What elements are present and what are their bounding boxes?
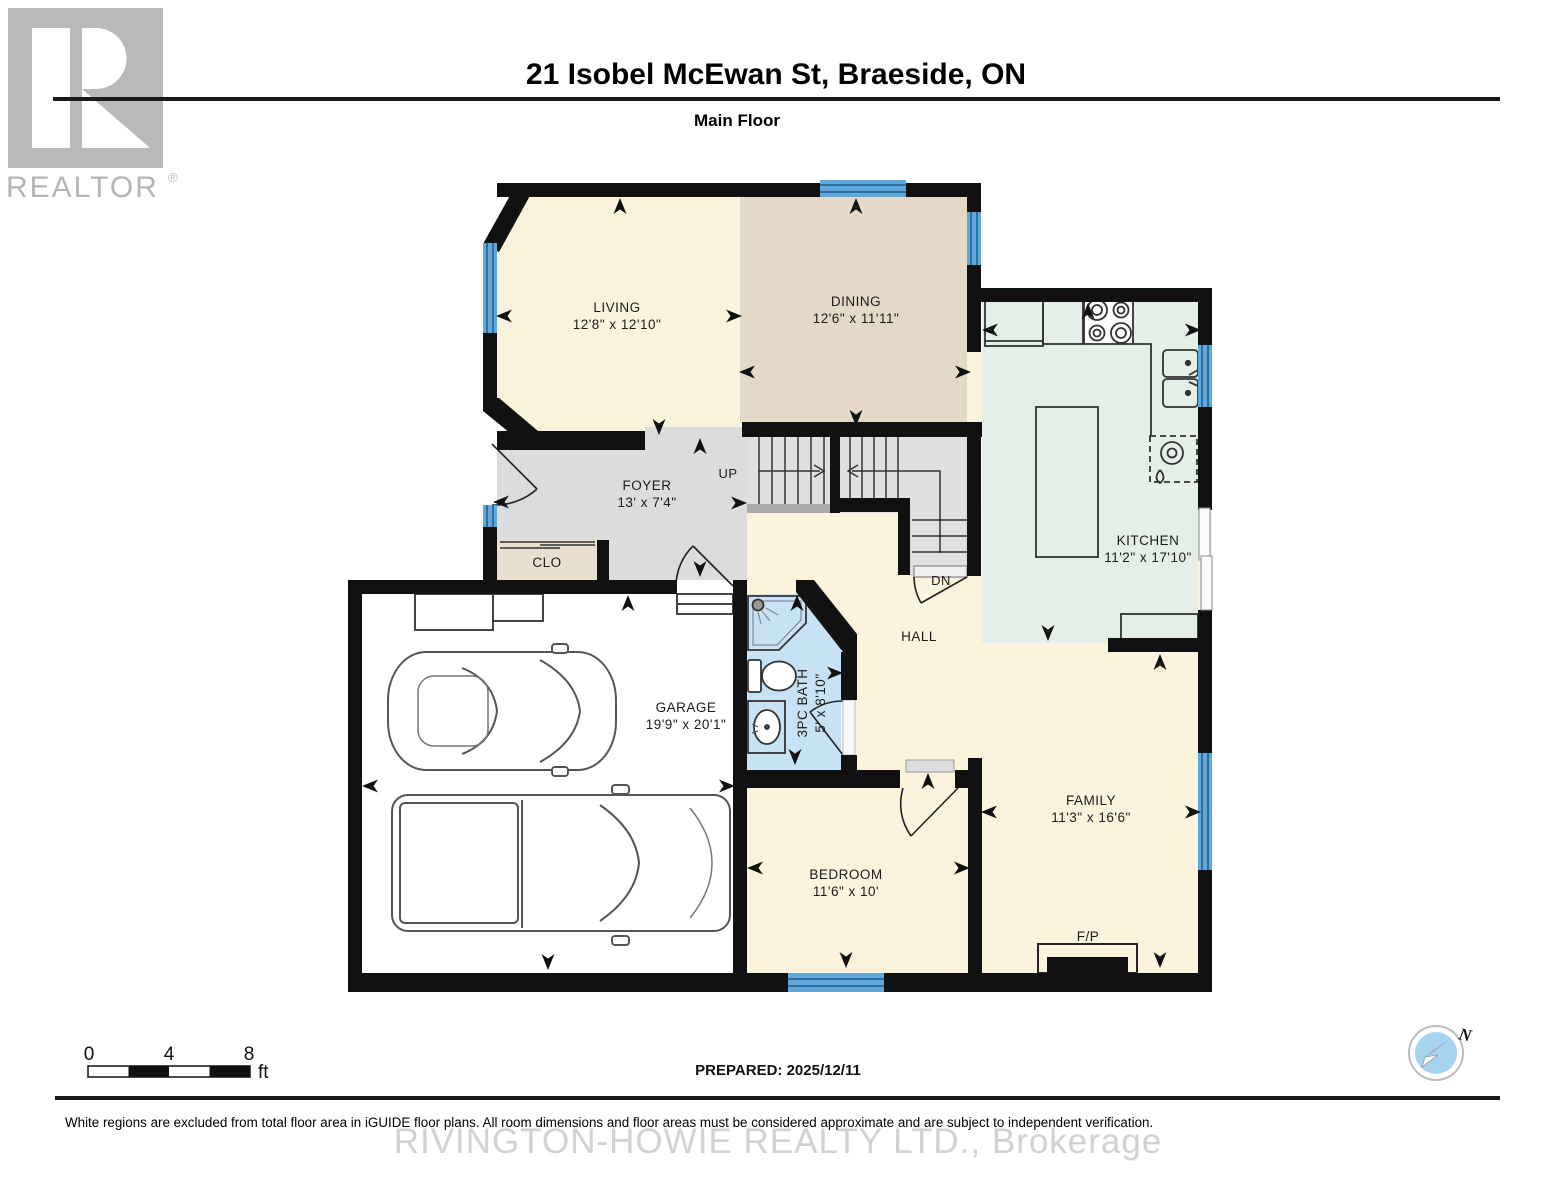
stairs-down-label: DN <box>931 573 951 588</box>
window-dining-right <box>967 212 981 265</box>
car-truck-icon <box>392 785 730 945</box>
bedroom-name: BEDROOM <box>809 867 882 882</box>
kitchen-dims: 11'2" x 17'10" <box>1104 550 1192 565</box>
bath-name: 3PC BATH <box>795 668 810 737</box>
shower-head-icon <box>753 600 764 611</box>
header-divider-line <box>53 97 1500 101</box>
stairs-lower-fill <box>905 505 967 575</box>
scale-bar-segment-2 <box>210 1066 251 1077</box>
car-sports-icon <box>388 644 616 776</box>
floor-label: Main Floor <box>694 111 780 130</box>
kitchen-counter-bottom <box>1121 614 1198 640</box>
closet-name: CLO <box>532 555 561 570</box>
garage-step <box>493 594 543 621</box>
realtor-logo: REALTOR ® <box>6 8 178 204</box>
scale-tick-0: 0 <box>84 1044 95 1065</box>
dining-name: DINING <box>831 294 881 309</box>
foyer-name: FOYER <box>622 478 671 493</box>
scale-tick-8: 8 <box>244 1044 255 1065</box>
dining-dims: 12'6" x 11'11" <box>813 311 900 326</box>
dining-kitchen-pass-fill <box>967 352 982 422</box>
living-name: LIVING <box>593 300 640 315</box>
compass-face <box>1415 1032 1457 1074</box>
floor-plan-page: REALTOR ® 21 Isobel McEwan St, Braeside,… <box>0 0 1553 1200</box>
toilet-icon <box>762 662 796 691</box>
page-title: 21 Isobel McEwan St, Braeside, ON <box>526 58 1026 91</box>
stairs-up-landing <box>747 504 831 513</box>
window-bedroom-bottom <box>788 973 884 992</box>
scale-tick-4: 4 <box>164 1044 175 1065</box>
family-dims: 11'3" x 16'6" <box>1051 810 1131 825</box>
kitchen-fill <box>982 302 1198 643</box>
bedroom-dims: 11'6" x 10' <box>813 884 879 899</box>
living-dims: 12'8" x 12'10" <box>573 317 662 332</box>
fireplace <box>1038 944 1137 974</box>
footer-divider-line <box>55 1096 1500 1100</box>
disclaimer-text: White regions are excluded from total fl… <box>65 1115 1153 1130</box>
floor-plan-canvas: REALTOR ® 21 Isobel McEwan St, Braeside,… <box>0 0 1553 1200</box>
patio-door <box>1199 508 1212 610</box>
stairs-up-label: UP <box>718 466 737 481</box>
garage-name: GARAGE <box>656 700 717 715</box>
prepared-date: PREPARED: 2025/12/11 <box>695 1062 861 1079</box>
dining-fill <box>740 197 967 422</box>
fireplace-label: F/P <box>1077 929 1100 944</box>
realtor-logo-text: REALTOR <box>6 171 159 204</box>
garage-dims: 19'9" x 20'1" <box>646 717 727 732</box>
family-name: FAMILY <box>1066 793 1116 808</box>
bath-dims: 5' x 8'10" <box>813 673 828 732</box>
scale-bar-segment-1 <box>129 1066 170 1077</box>
bath-door-gap <box>843 700 855 755</box>
kitchen-name: KITCHEN <box>1117 533 1180 548</box>
window-living-left <box>483 243 497 333</box>
window-foyer-left <box>483 505 497 527</box>
hall-name: HALL <box>901 629 937 644</box>
window-family-right <box>1198 753 1212 870</box>
garage-utility-box <box>415 594 493 630</box>
realtor-registered-mark: ® <box>168 170 178 185</box>
foyer-dims: 13' x 7'4" <box>617 495 676 510</box>
realtor-logo-r-bar <box>32 28 70 148</box>
window-kitchen-right <box>1198 345 1212 407</box>
toilet-tank <box>748 660 761 692</box>
bedroom-door-threshold <box>906 760 954 772</box>
window-dining-top <box>820 180 906 197</box>
scale-unit: ft <box>258 1062 269 1083</box>
fireplace-firebox <box>1047 957 1128 974</box>
